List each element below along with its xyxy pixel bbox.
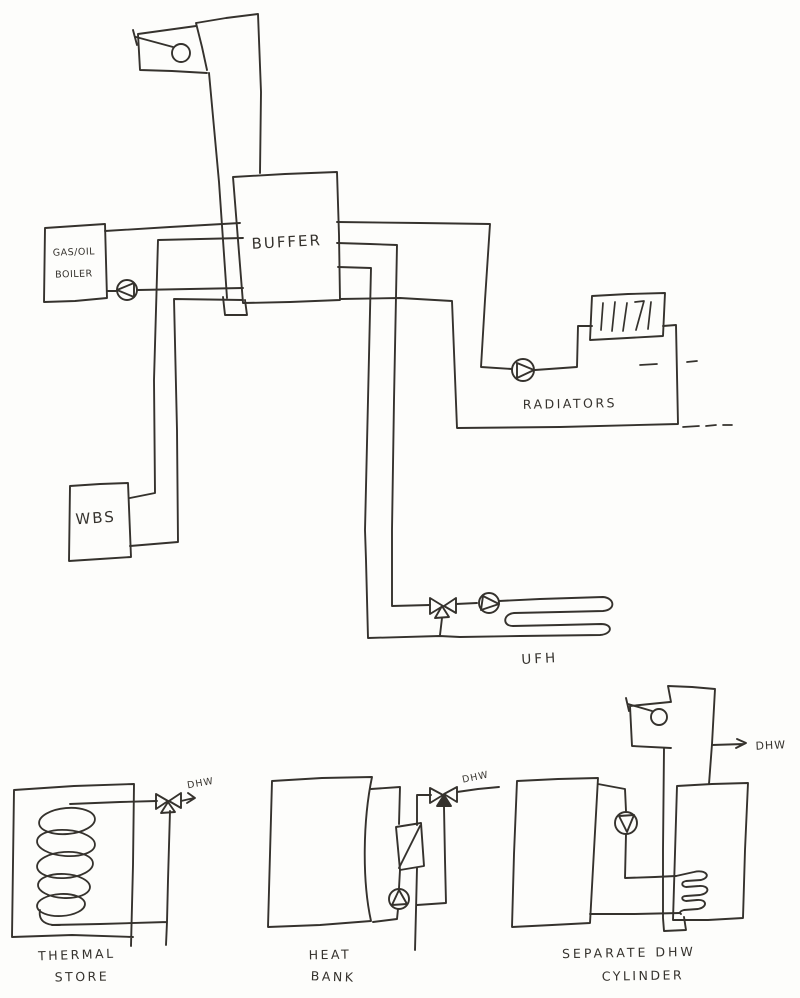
- plate-heat-exchanger-icon: [396, 823, 424, 870]
- heatbank-cold-feed-pipe: [415, 868, 417, 950]
- heatbank-mixing-valve-icon: [430, 787, 457, 806]
- separate-cylinder-label-line2: CYLINDER: [602, 967, 685, 983]
- thermal-flow-pipe: [70, 801, 157, 804]
- thermal-store-dhw-label: DHW: [186, 776, 214, 791]
- heat-bank-label-line2: BANK: [311, 968, 356, 985]
- cylinder-pump-icon: [615, 812, 637, 834]
- heat-bank-tank: [268, 777, 372, 927]
- thermal-store-option: [12, 784, 195, 946]
- heat-bank-label-line1: HEAT: [309, 947, 352, 963]
- dhw-cylinder-tank: [673, 783, 748, 920]
- buffer-label: BUFFER: [251, 231, 322, 253]
- wbs-label: WBS: [75, 508, 117, 529]
- ball-float-icon: [172, 44, 190, 62]
- ball-float-icon: [651, 709, 667, 725]
- cylinder-vent-pipe: [668, 686, 715, 784]
- valve-bypass-stem: [440, 618, 442, 635]
- pump-triangle: [481, 596, 499, 610]
- thermal-store-label-line1: THERMAL: [37, 946, 116, 964]
- heat-bank-dhw-label: DHW: [461, 769, 490, 785]
- ufh-pump-link: [456, 603, 477, 604]
- cylinder-dhw-label: DHW: [755, 738, 786, 753]
- wbs-return-pipe: [130, 299, 243, 546]
- ufh-coil-and-return: [338, 267, 612, 638]
- thermal-store-label-line2: STORE: [55, 969, 110, 985]
- ufh-pump-icon: [479, 593, 499, 613]
- store-tank: [512, 778, 598, 927]
- radiator-return-pipe: [340, 298, 678, 428]
- radiator-pump-icon: [512, 359, 534, 381]
- boiler-pump-icon: [117, 280, 137, 300]
- boiler-label-line1: GAS/OIL: [53, 246, 96, 258]
- separate-cylinder-label-line1: SEPARATE DHW: [562, 944, 696, 961]
- radiator-continuation-dashes: [640, 361, 732, 427]
- sketch-page: BUFFER GAS/OIL BOILER WBS RADIATORS UFH …: [0, 0, 800, 998]
- thermal-mixing-valve-icon: [156, 793, 181, 813]
- radiator-fins: [601, 301, 651, 331]
- boiler-label-line2: BOILER: [55, 268, 93, 280]
- cylinder-header-tank-box: [630, 702, 671, 748]
- radiators-label: RADIATORS: [523, 395, 617, 412]
- heatbank-valve-riser: [417, 795, 431, 825]
- vent-pipe: [196, 14, 261, 298]
- ufh-circuit: [337, 243, 612, 638]
- phe-diagonal: [399, 826, 420, 868]
- pump-triangle: [392, 890, 407, 905]
- vent-and-header-tank: [133, 14, 261, 315]
- boiler-return-pipe: [107, 288, 243, 291]
- heatbank-primary-pipe: [371, 787, 400, 922]
- ufh-mixing-valve-icon: [430, 598, 456, 635]
- boiler-flow-pipe: [105, 223, 240, 231]
- separate-cylinder-option: [512, 686, 748, 931]
- gas-oil-boiler: [44, 224, 107, 302]
- thermal-dhw-arrow: [181, 793, 195, 803]
- heating-schematic-sketch: BUFFER GAS/OIL BOILER WBS RADIATORS UFH …: [0, 0, 800, 998]
- heatbank-pump-icon: [389, 889, 409, 909]
- pump-triangle: [619, 815, 634, 832]
- pump-triangle: [117, 283, 134, 297]
- heating-coil-icon: [36, 806, 96, 926]
- heatbank-dhw-pipe: [457, 787, 499, 792]
- heatbank-valve-cold-drop: [417, 807, 446, 905]
- ink-strokes: [12, 14, 748, 950]
- cylinder-coil-icon: [676, 871, 707, 914]
- heat-bank-option: [268, 777, 499, 950]
- ufh-label: UFH: [521, 650, 559, 668]
- cylinder-dhw-arrow: [712, 739, 746, 748]
- cylinder-return-pipe: [590, 913, 680, 914]
- pump-body: [512, 359, 534, 381]
